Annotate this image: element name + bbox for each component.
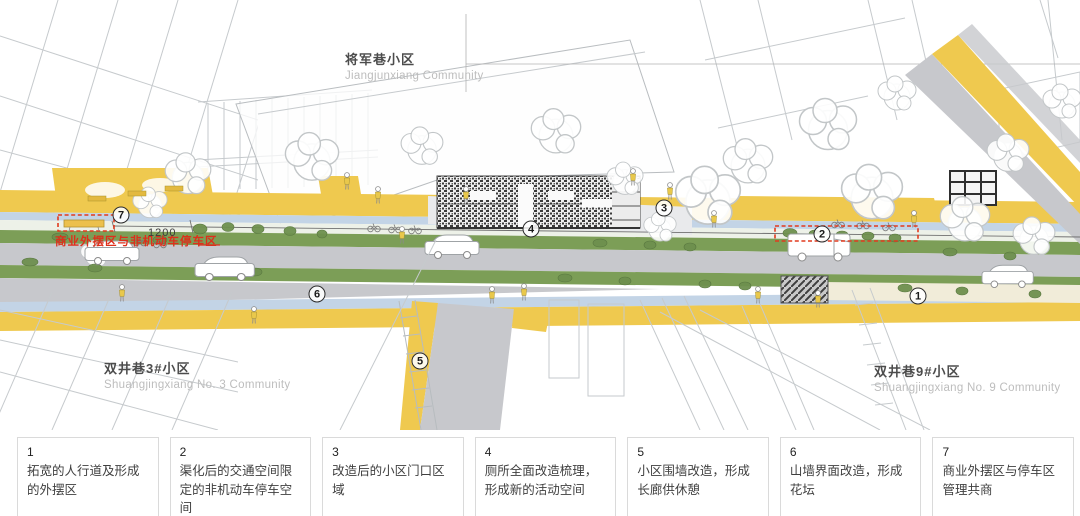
legend-item-text: 小区围墙改造，形成长廊供休憩	[637, 462, 759, 498]
community-label-zh: 双井巷9#小区	[874, 361, 1060, 380]
dimension-label: 1200	[148, 227, 176, 239]
legend-item-number: 7	[942, 444, 1064, 461]
legend-item-text: 山墙界面改造，形成花坛	[790, 462, 912, 498]
community-label-jiangjunxiang: 将军巷小区 Jiangjunxiang Community	[345, 49, 484, 82]
legend-item-number: 4	[485, 444, 607, 461]
legend-item-number: 6	[790, 444, 912, 461]
legend-item-3: 3 改造后的小区门口区域	[322, 437, 464, 516]
legend-item-4: 4 厕所全面改造梳理，形成新的活动空间	[475, 437, 617, 516]
legend-item-text: 商业外摆区与停车区管理共商	[942, 462, 1064, 498]
hatched-fence	[781, 276, 828, 303]
community-label-zh: 双井巷3#小区	[104, 358, 290, 377]
legend-item-1: 1 拓宽的人行道及形成的外摆区	[17, 437, 159, 516]
community-label-en: Jiangjunxiang Community	[345, 70, 484, 82]
legend-item-text: 改造后的小区门口区域	[332, 462, 454, 498]
community-label-en: Shuangjingxiang No. 9 Community	[874, 382, 1060, 394]
community-label-shuangjingxiang-9: 双井巷9#小区 Shuangjingxiang No. 9 Community	[874, 361, 1060, 394]
community-label-en: Shuangjingxiang No. 3 Community	[104, 379, 290, 391]
legend-item-6: 6 山墙界面改造，形成花坛	[780, 437, 922, 516]
legend-item-2: 2 渠化后的交通空间限定的非机动车停车空间	[170, 437, 312, 516]
community-label-shuangjingxiang-3: 双井巷3#小区 Shuangjingxiang No. 3 Community	[104, 358, 290, 391]
urban-design-diagram: 将军巷小区 Jiangjunxiang Community 双井巷3#小区 Sh…	[0, 0, 1080, 516]
legend-item-5: 5 小区围墙改造，形成长廊供休憩	[627, 437, 769, 516]
legend-item-number: 1	[27, 444, 149, 461]
legend-item-number: 5	[637, 444, 759, 461]
community-label-zh: 将军巷小区	[345, 49, 484, 68]
legend: 1 拓宽的人行道及形成的外摆区 2 渠化后的交通空间限定的非机动车停车空间 3 …	[17, 437, 1074, 516]
legend-item-number: 3	[332, 444, 454, 461]
legend-item-text: 厕所全面改造梳理，形成新的活动空间	[485, 462, 607, 498]
legend-item-7: 7 商业外摆区与停车区管理共商	[932, 437, 1074, 516]
legend-item-number: 2	[180, 444, 302, 461]
red-annotation-label: 商业外摆区与非机动车停车区	[55, 233, 218, 249]
legend-item-text: 渠化后的交通空间限定的非机动车停车空间	[180, 462, 302, 516]
legend-item-text: 拓宽的人行道及形成的外摆区	[27, 462, 149, 498]
